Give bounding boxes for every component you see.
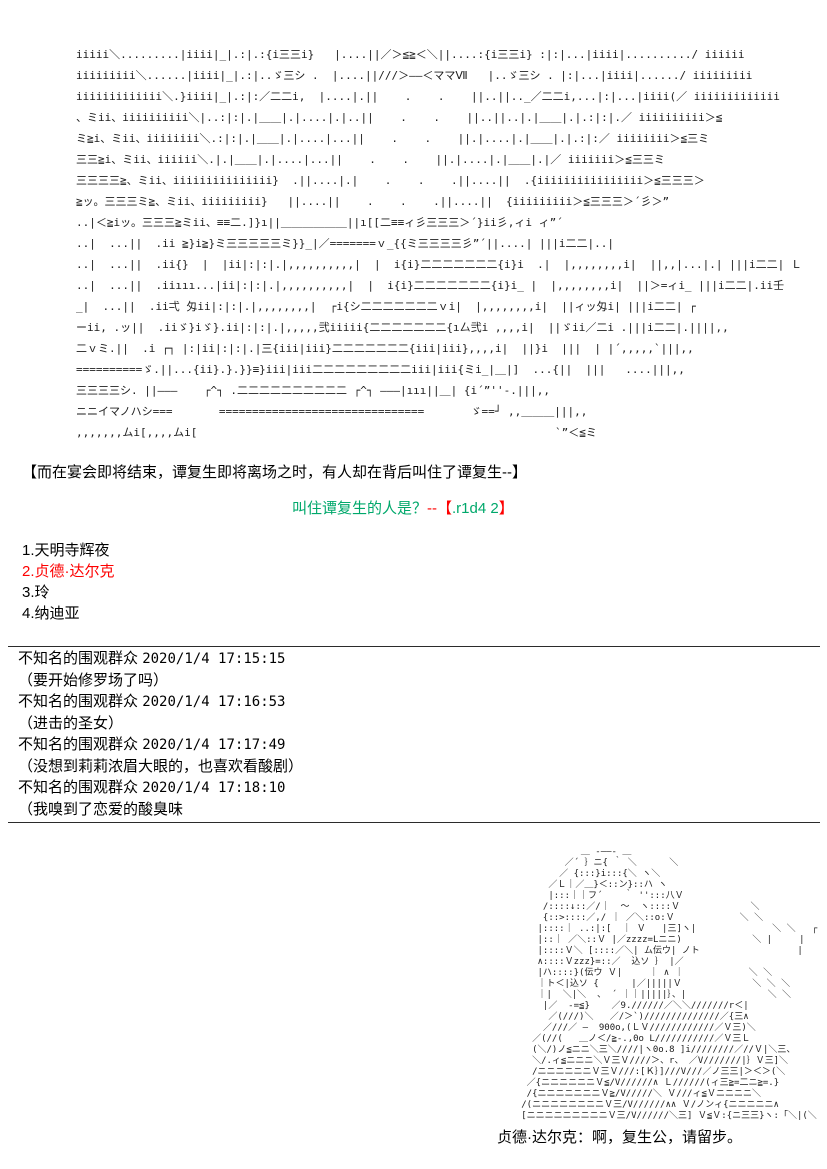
comment-author: 不知名的围观群众 xyxy=(18,736,138,753)
comment-head: 不知名的围观群众 2020/1/4 17:18:10 xyxy=(18,777,303,799)
comment-message: （进击的圣女） xyxy=(18,713,303,734)
comments-bottom-divider xyxy=(8,822,820,823)
story-page: iiiii＼.........|iiii|_|.:|.:{i三三i} |....… xyxy=(0,0,827,1169)
option-item-3: 3.玲 xyxy=(22,582,115,603)
comment-head: 不知名的围观群众 2020/1/4 17:16:53 xyxy=(18,691,303,713)
option-list: 1.天明寺辉夜 2.贞德·达尔克 3.玲 4.纳迪亚 xyxy=(22,540,115,624)
comment-head: 不知名的围观群众 2020/1/4 17:15:15 xyxy=(18,648,303,670)
comment-section: 不知名的围观群众 2020/1/4 17:15:15 （要开始修罗场了吗） 不知… xyxy=(18,648,303,820)
character-ascii-art: ＿ -――- ＿ ／´ ｝ニ{ ｀ ＼ ＼ ／ {:::}i:::{＼ ヽ＼ ／… xyxy=(505,847,817,1122)
comment-timestamp: 2020/1/4 17:17:49 xyxy=(142,737,285,753)
comment-timestamp: 2020/1/4 17:16:53 xyxy=(142,694,285,710)
option-item-4: 4.纳迪亚 xyxy=(22,603,115,624)
comment-row: 不知名的围观群众 2020/1/4 17:16:53 （进击的圣女） xyxy=(18,691,303,734)
comment-message: （我嗅到了恋爱的酸臭味 xyxy=(18,799,303,820)
comment-row: 不知名的围观群众 2020/1/4 17:15:15 （要开始修罗场了吗） xyxy=(18,648,303,691)
option-item-1: 1.天明寺辉夜 xyxy=(22,540,115,561)
top-ascii-art: iiiii＼.........|iiii|_|.:|.:{i三三i} |....… xyxy=(76,44,802,443)
comment-head: 不知名的围观群众 2020/1/4 17:17:49 xyxy=(18,734,303,756)
comment-author: 不知名的围观群众 xyxy=(18,779,138,796)
dice-question-line: 叫住谭复生的人是？--【.r1d4 2】 xyxy=(292,497,514,518)
comments-top-divider xyxy=(8,646,820,647)
option-item-2-selected: 2.贞德·达尔克 xyxy=(22,561,115,582)
comment-author: 不知名的围观群众 xyxy=(18,693,138,710)
comment-row: 不知名的围观群众 2020/1/4 17:18:10 （我嗅到了恋爱的酸臭味 xyxy=(18,777,303,820)
question-text: 叫住谭复生的人是？ xyxy=(292,500,427,517)
narration-line: 【而在宴会即将结束，谭复生即将离场之时，有人却在背后叫住了谭复生--】 xyxy=(22,461,527,482)
comment-timestamp: 2020/1/4 17:15:15 xyxy=(142,651,285,667)
comment-row: 不知名的围观群众 2020/1/4 17:17:49 （没想到莉莉浓眉大眼的，也… xyxy=(18,734,303,777)
comment-message: （要开始修罗场了吗） xyxy=(18,670,303,691)
comment-timestamp: 2020/1/4 17:18:10 xyxy=(142,780,285,796)
dice-roll-result: .r1d4 2 xyxy=(452,500,499,517)
comment-author: 不知名的围观群众 xyxy=(18,650,138,667)
comment-message: （没想到莉莉浓眉大眼的，也喜欢看酸剧） xyxy=(18,756,303,777)
question-close-bracket: 】 xyxy=(499,500,514,517)
character-dialogue-caption: 贞德·达尔克：啊，复生公，请留步。 xyxy=(497,1126,742,1147)
question-dash-open-bracket: --【 xyxy=(427,500,452,517)
